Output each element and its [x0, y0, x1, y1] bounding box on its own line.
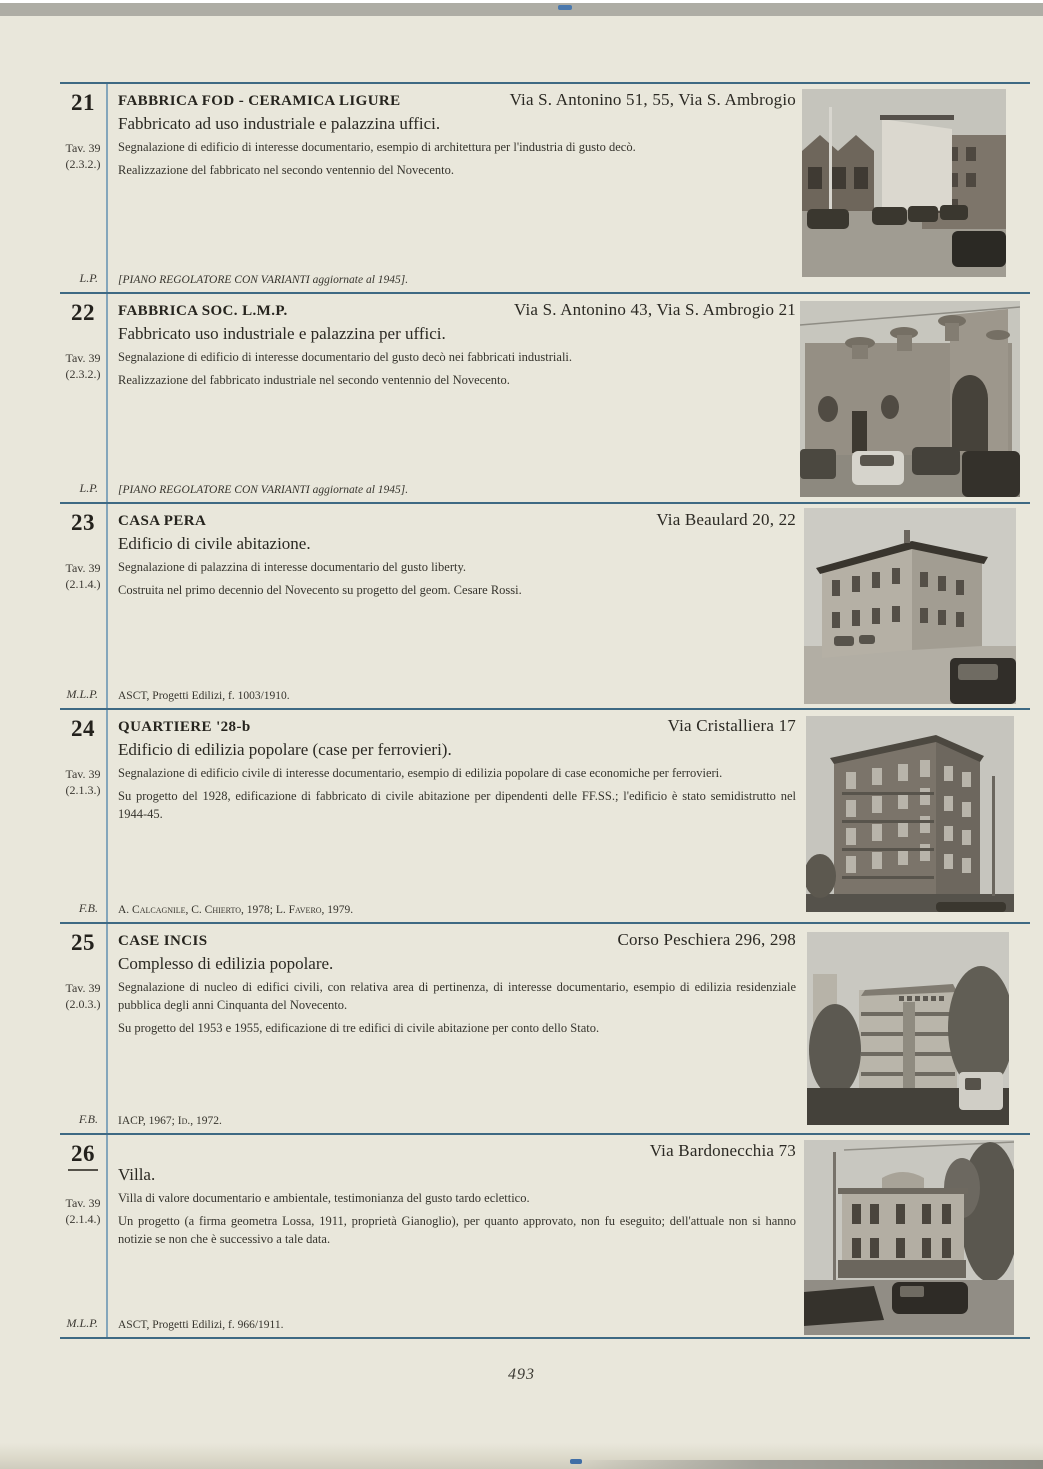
- entry-photo: [804, 508, 1016, 704]
- catalog-entry-24: 24 Tav. 39 (2.1.3.) F.B. QUARTIERE '28-b…: [60, 708, 1030, 922]
- entry-number: 21: [60, 90, 106, 116]
- entry-title-row: QUARTIERE '28-b Via Cristalliera 17: [118, 716, 796, 736]
- catalog-entry-21: 21 Tav. 39 (2.3.2.) L.P. FABBRICA FOD - …: [60, 82, 1030, 292]
- entry-left-column: 21 Tav. 39 (2.3.2.) L.P.: [60, 84, 106, 292]
- entry-title: QUARTIERE '28-b: [118, 719, 251, 736]
- entry-plate-ref: Tav. 39 (2.3.2.): [60, 350, 106, 382]
- entry-title-row: CASA PERA Via Beaulard 20, 22: [118, 510, 796, 530]
- scan-top-edge-band: [0, 0, 1043, 16]
- entry-title: CASA PERA: [118, 513, 206, 530]
- catalog-entry-22: 22 Tav. 39 (2.3.2.) L.P. FABBRICA SOC. L…: [60, 292, 1030, 502]
- column-divider: [106, 504, 108, 708]
- entry-title-row: FABBRICA FOD - CERAMICA LIGURE Via S. An…: [118, 90, 796, 110]
- entry-subtitle: Villa.: [118, 1165, 796, 1185]
- entry-tav: Tav. 39: [60, 1195, 106, 1211]
- column-divider: [106, 294, 108, 502]
- entry-title-row: Via Bardonecchia 73: [118, 1141, 796, 1161]
- column-divider: [106, 84, 108, 292]
- entry-compiler-initials: M.L.P.: [67, 1316, 98, 1331]
- entry-title-row: FABBRICA SOC. L.M.P. Via S. Antonino 43,…: [118, 300, 796, 320]
- entry-description: Segnalazione di edificio civile di inter…: [118, 765, 796, 783]
- entry-plate-ref: Tav. 39 (2.3.2.): [60, 140, 106, 172]
- entry-tav: Tav. 39: [60, 560, 106, 576]
- entry-number: 22: [60, 300, 106, 326]
- page-number: 493: [0, 1366, 1043, 1384]
- entry-reference: [PIANO REGOLATORE CON VARIANTI aggiornat…: [118, 274, 408, 286]
- entry-number: 23: [60, 510, 106, 536]
- entry-compiler-initials: M.L.P.: [67, 687, 98, 702]
- entry-text-column: QUARTIERE '28-b Via Cristalliera 17 Edif…: [118, 710, 796, 922]
- entry-reference: [PIANO REGOLATORE CON VARIANTI aggiornat…: [118, 484, 408, 496]
- entry-compiler-initials: F.B.: [79, 1112, 98, 1127]
- entry-tav: Tav. 39: [60, 350, 106, 366]
- entry-address: Via Beaulard 20, 22: [656, 510, 796, 530]
- building-photo-illustration: [800, 301, 1020, 497]
- entry-plate-ref: Tav. 39 (2.1.4.): [60, 560, 106, 592]
- entry-description: Segnalazione di edificio di interesse do…: [118, 349, 796, 367]
- entry-title: FABBRICA FOD - CERAMICA LIGURE: [118, 93, 401, 110]
- entry-code: (2.3.2.): [60, 156, 106, 172]
- entry-reference: ASCT, Progetti Edilizi, f. 1003/1910.: [118, 690, 290, 702]
- entry-text-column: FABBRICA SOC. L.M.P. Via S. Antonino 43,…: [118, 294, 796, 502]
- column-divider: [106, 1135, 108, 1337]
- entry-code: (2.0.3.): [60, 996, 106, 1012]
- entry-left-column: 23 Tav. 39 (2.1.4.) M.L.P.: [60, 504, 106, 708]
- entry-description: Segnalazione di edificio di interesse do…: [118, 139, 796, 157]
- entry-subtitle: Complesso di edilizia popolare.: [118, 954, 796, 974]
- entry-description: Segnalazione di palazzina di interesse d…: [118, 559, 796, 577]
- entry-plate-ref: Tav. 39 (2.1.3.): [60, 766, 106, 798]
- entry-reference: ASCT, Progetti Edilizi, f. 966/1911.: [118, 1319, 283, 1331]
- entry-left-column: 26 Tav. 39 (2.1.4.) M.L.P.: [60, 1135, 106, 1337]
- entry-reference: A. Calcagnile, C. Chierto, 1978; L. Fave…: [118, 904, 353, 916]
- entry-compiler-initials: F.B.: [79, 901, 98, 916]
- entry-tav: Tav. 39: [60, 140, 106, 156]
- catalog-entry-25: 25 Tav. 39 (2.0.3.) F.B. CASE INCIS Cors…: [60, 922, 1030, 1133]
- table-bottom-rule: [60, 1337, 1030, 1339]
- entry-description: Un progetto (a firma geometra Lossa, 191…: [118, 1213, 796, 1249]
- entry-address: Corso Peschiera 296, 298: [617, 930, 796, 950]
- entry-code: (2.3.2.): [60, 366, 106, 382]
- entry-compiler-initials: L.P.: [80, 481, 98, 496]
- catalog-table: 21 Tav. 39 (2.3.2.) L.P. FABBRICA FOD - …: [60, 82, 1030, 1339]
- entry-photo: [800, 301, 1020, 497]
- entry-text-column: CASE INCIS Corso Peschiera 296, 298 Comp…: [118, 924, 796, 1133]
- entry-description: Realizzazione del fabbricato industriale…: [118, 372, 796, 390]
- entry-tav: Tav. 39: [60, 766, 106, 782]
- entry-code: (2.1.4.): [60, 576, 106, 592]
- entry-description: Realizzazione del fabbricato nel secondo…: [118, 162, 796, 180]
- registration-mark-top: [558, 5, 572, 10]
- building-photo-illustration: [802, 89, 1006, 277]
- entry-number: 25: [60, 930, 106, 956]
- entry-address: Via S. Antonino 51, 55, Via S. Ambrogio: [510, 90, 796, 110]
- entry-text-column: Via Bardonecchia 73 Villa. Villa di valo…: [118, 1135, 796, 1337]
- entry-left-column: 22 Tav. 39 (2.3.2.) L.P.: [60, 294, 106, 502]
- entry-plate-ref: Tav. 39 (2.1.4.): [60, 1195, 106, 1227]
- entry-photo: [802, 89, 1006, 277]
- entry-code: (2.1.3.): [60, 782, 106, 798]
- entry-title: CASE INCIS: [118, 933, 207, 950]
- entry-description: Costruita nel primo decennio del Novecen…: [118, 582, 796, 600]
- catalog-entry-26: 26 Tav. 39 (2.1.4.) M.L.P. Via Bardonecc…: [60, 1133, 1030, 1337]
- building-photo-illustration: [804, 1140, 1014, 1335]
- building-photo-illustration: [806, 716, 1014, 912]
- entry-address: Via Cristalliera 17: [668, 716, 796, 736]
- entry-photo: [807, 932, 1009, 1125]
- scan-bottom-edge-band: [0, 1443, 1043, 1469]
- entry-left-column: 25 Tav. 39 (2.0.3.) F.B.: [60, 924, 106, 1133]
- entry-description: Su progetto del 1953 e 1955, edificazion…: [118, 1020, 796, 1038]
- entry-title: FABBRICA SOC. L.M.P.: [118, 303, 288, 320]
- entry-subtitle: Edificio di civile abitazione.: [118, 534, 796, 554]
- entry-number: 24: [60, 716, 106, 742]
- entry-subtitle: Fabbricato ad uso industriale e palazzin…: [118, 114, 796, 134]
- entry-code: (2.1.4.): [60, 1211, 106, 1227]
- entry-compiler-initials: L.P.: [80, 271, 98, 286]
- entry-address: Via S. Antonino 43, Via S. Ambrogio 21: [514, 300, 796, 320]
- building-photo-illustration: [804, 508, 1016, 704]
- entry-text-column: CASA PERA Via Beaulard 20, 22 Edificio d…: [118, 504, 796, 708]
- entry-title-row: CASE INCIS Corso Peschiera 296, 298: [118, 930, 796, 950]
- entry-subtitle: Fabbricato uso industriale e palazzina p…: [118, 324, 796, 344]
- entry-subtitle: Edificio di edilizia popolare (case per …: [118, 740, 796, 760]
- entry-photo: [806, 716, 1014, 912]
- entry-left-column: 24 Tav. 39 (2.1.3.) F.B.: [60, 710, 106, 922]
- registration-mark-bottom: [570, 1459, 582, 1464]
- building-photo-illustration: [807, 932, 1009, 1125]
- entry-description: Su progetto del 1928, edificazione di fa…: [118, 788, 796, 824]
- column-divider: [106, 710, 108, 922]
- entry-reference: IACP, 1967; Id., 1972.: [118, 1115, 222, 1127]
- column-divider: [106, 924, 108, 1133]
- entry-address: Via Bardonecchia 73: [650, 1141, 796, 1161]
- entry-description: Segnalazione di nucleo di edifici civili…: [118, 979, 796, 1015]
- entry-plate-ref: Tav. 39 (2.0.3.): [60, 980, 106, 1012]
- entry-description: Villa di valore documentario e ambiental…: [118, 1190, 796, 1208]
- entry-tav: Tav. 39: [60, 980, 106, 996]
- catalog-entry-23: 23 Tav. 39 (2.1.4.) M.L.P. CASA PERA Via…: [60, 502, 1030, 708]
- entry-number: 26: [68, 1141, 98, 1171]
- entry-text-column: FABBRICA FOD - CERAMICA LIGURE Via S. An…: [118, 84, 796, 292]
- scanned-catalog-page: { "page": { "number": "493" }, "colors":…: [0, 0, 1043, 1469]
- entry-photo: [804, 1140, 1014, 1335]
